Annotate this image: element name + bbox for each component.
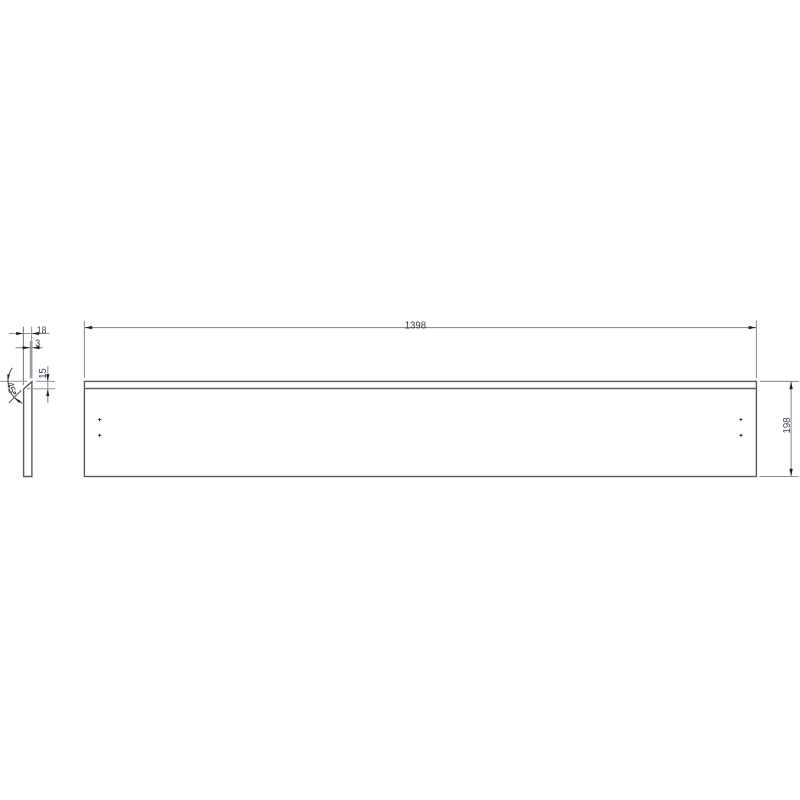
svg-text:15: 15 xyxy=(38,368,49,379)
svg-text:198: 198 xyxy=(782,417,793,433)
svg-text:1398: 1398 xyxy=(405,320,427,331)
svg-text:18: 18 xyxy=(37,326,47,337)
svg-text:3: 3 xyxy=(35,339,40,350)
